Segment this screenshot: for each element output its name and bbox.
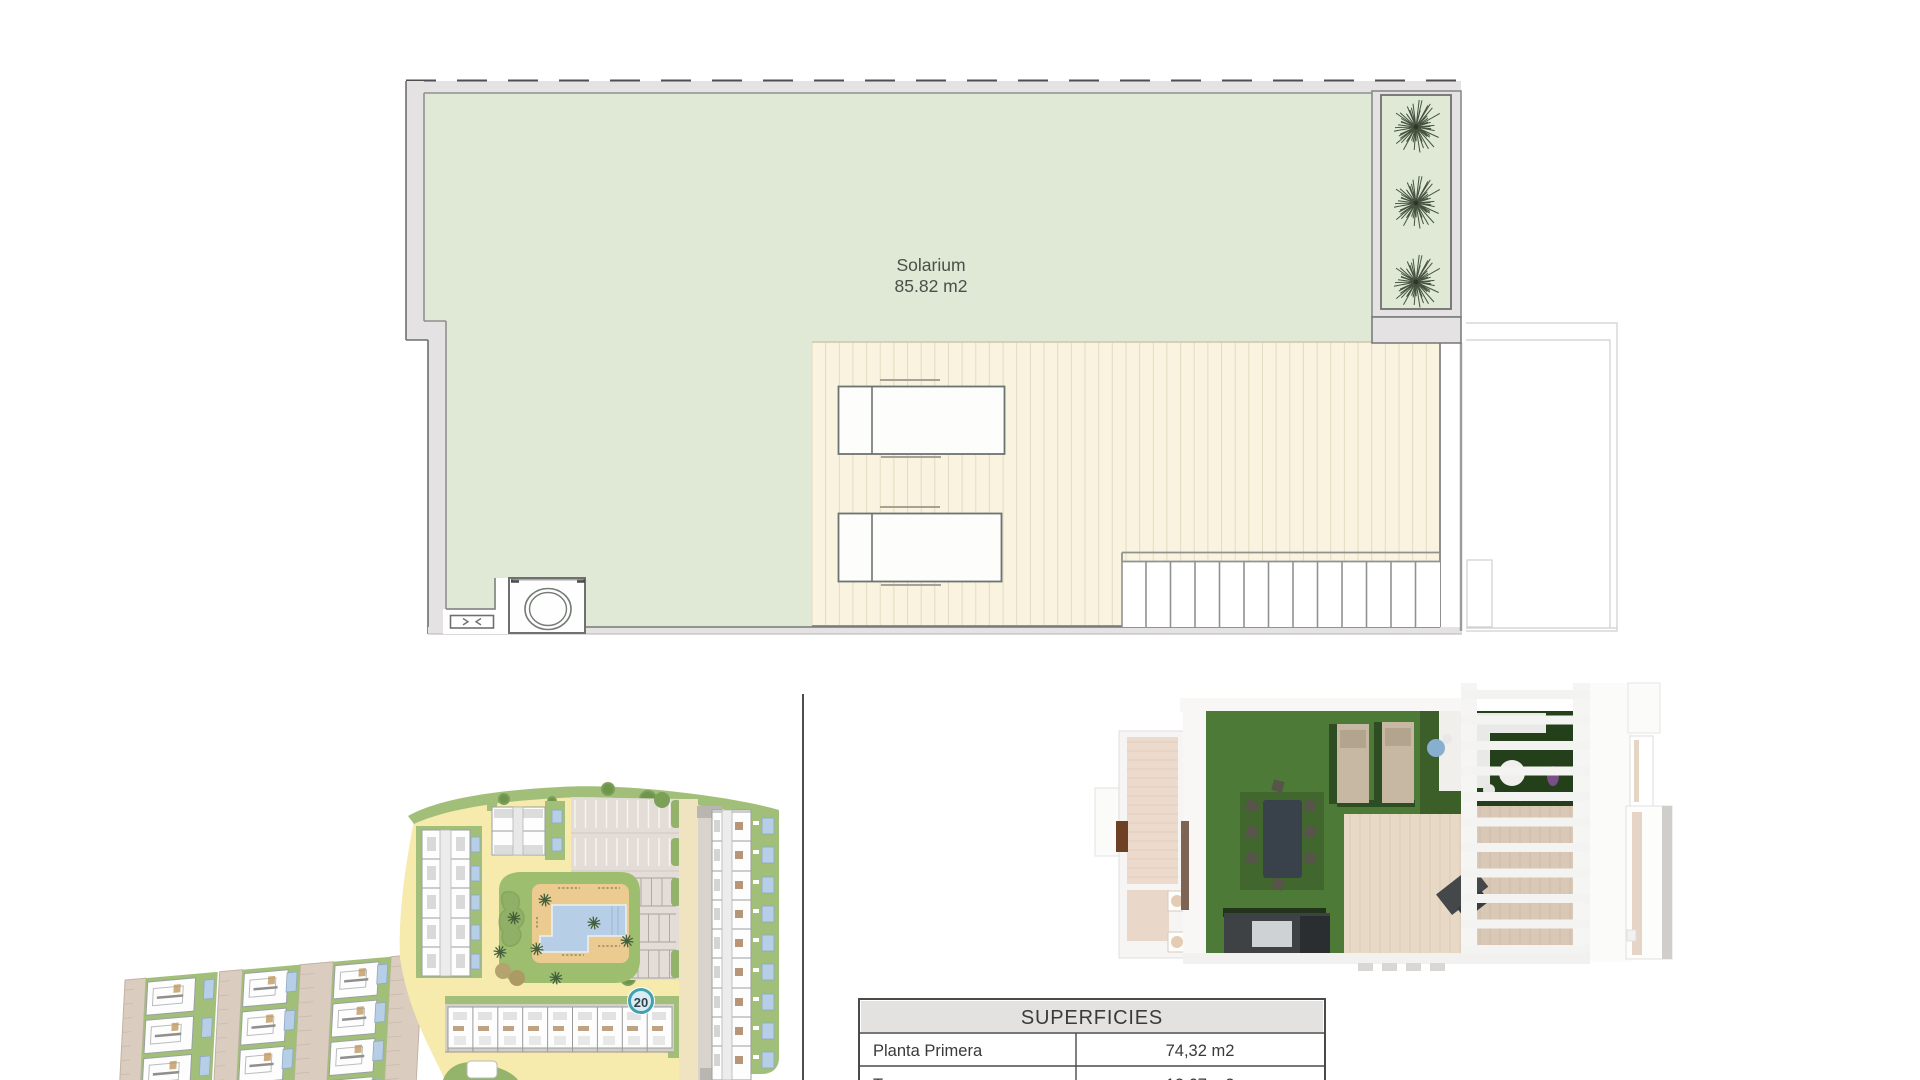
svg-text:Terraza: Terraza [873,1076,929,1080]
svg-text:85.82 m2: 85.82 m2 [895,276,968,296]
svg-text:74,32 m2: 74,32 m2 [1166,1042,1235,1060]
svg-text:Planta Primera: Planta Primera [873,1042,983,1060]
svg-text:20: 20 [634,995,648,1010]
svg-text:SUPERFICIES: SUPERFICIES [1021,1007,1163,1029]
svg-text:12,67 m2: 12,67 m2 [1166,1076,1235,1080]
svg-text:Solarium: Solarium [896,255,965,275]
